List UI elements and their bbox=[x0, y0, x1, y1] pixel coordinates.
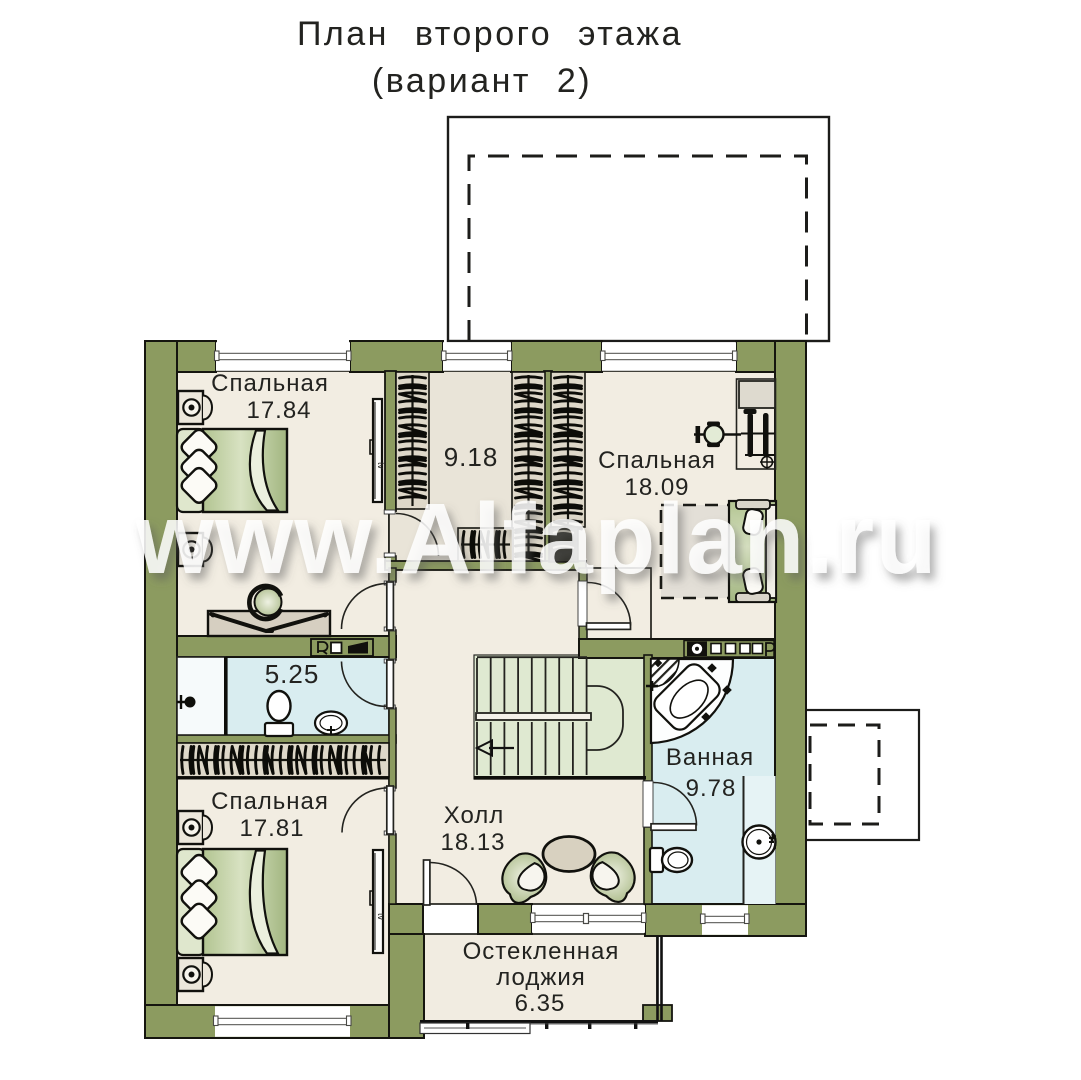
svg-text:План второго этажа: План второго этажа bbox=[297, 15, 683, 53]
svg-text:лоджия: лоджия bbox=[496, 964, 586, 991]
svg-text:tv: tv bbox=[376, 913, 386, 921]
svg-text:17.81: 17.81 bbox=[239, 815, 304, 842]
svg-text:Спальная: Спальная bbox=[211, 788, 329, 815]
svg-text:Остекленная: Остекленная bbox=[463, 938, 620, 965]
svg-text:Ванная: Ванная bbox=[666, 744, 754, 771]
svg-text:Спальная: Спальная bbox=[598, 447, 716, 474]
svg-text:(вариант 2): (вариант 2) bbox=[372, 62, 592, 100]
svg-text:9.18: 9.18 bbox=[444, 442, 499, 472]
svg-text:5.25: 5.25 bbox=[265, 659, 320, 689]
svg-text:9.78: 9.78 bbox=[686, 775, 737, 802]
svg-text:17.84: 17.84 bbox=[246, 397, 311, 424]
svg-text:Спальная: Спальная bbox=[211, 370, 329, 397]
svg-text:Холл: Холл bbox=[444, 802, 505, 829]
svg-text:18.13: 18.13 bbox=[440, 829, 505, 856]
svg-text:6.35: 6.35 bbox=[515, 990, 566, 1017]
svg-text:tv: tv bbox=[376, 462, 386, 470]
svg-text:www.Alfaplan.ru: www.Alfaplan.ru bbox=[135, 483, 938, 595]
